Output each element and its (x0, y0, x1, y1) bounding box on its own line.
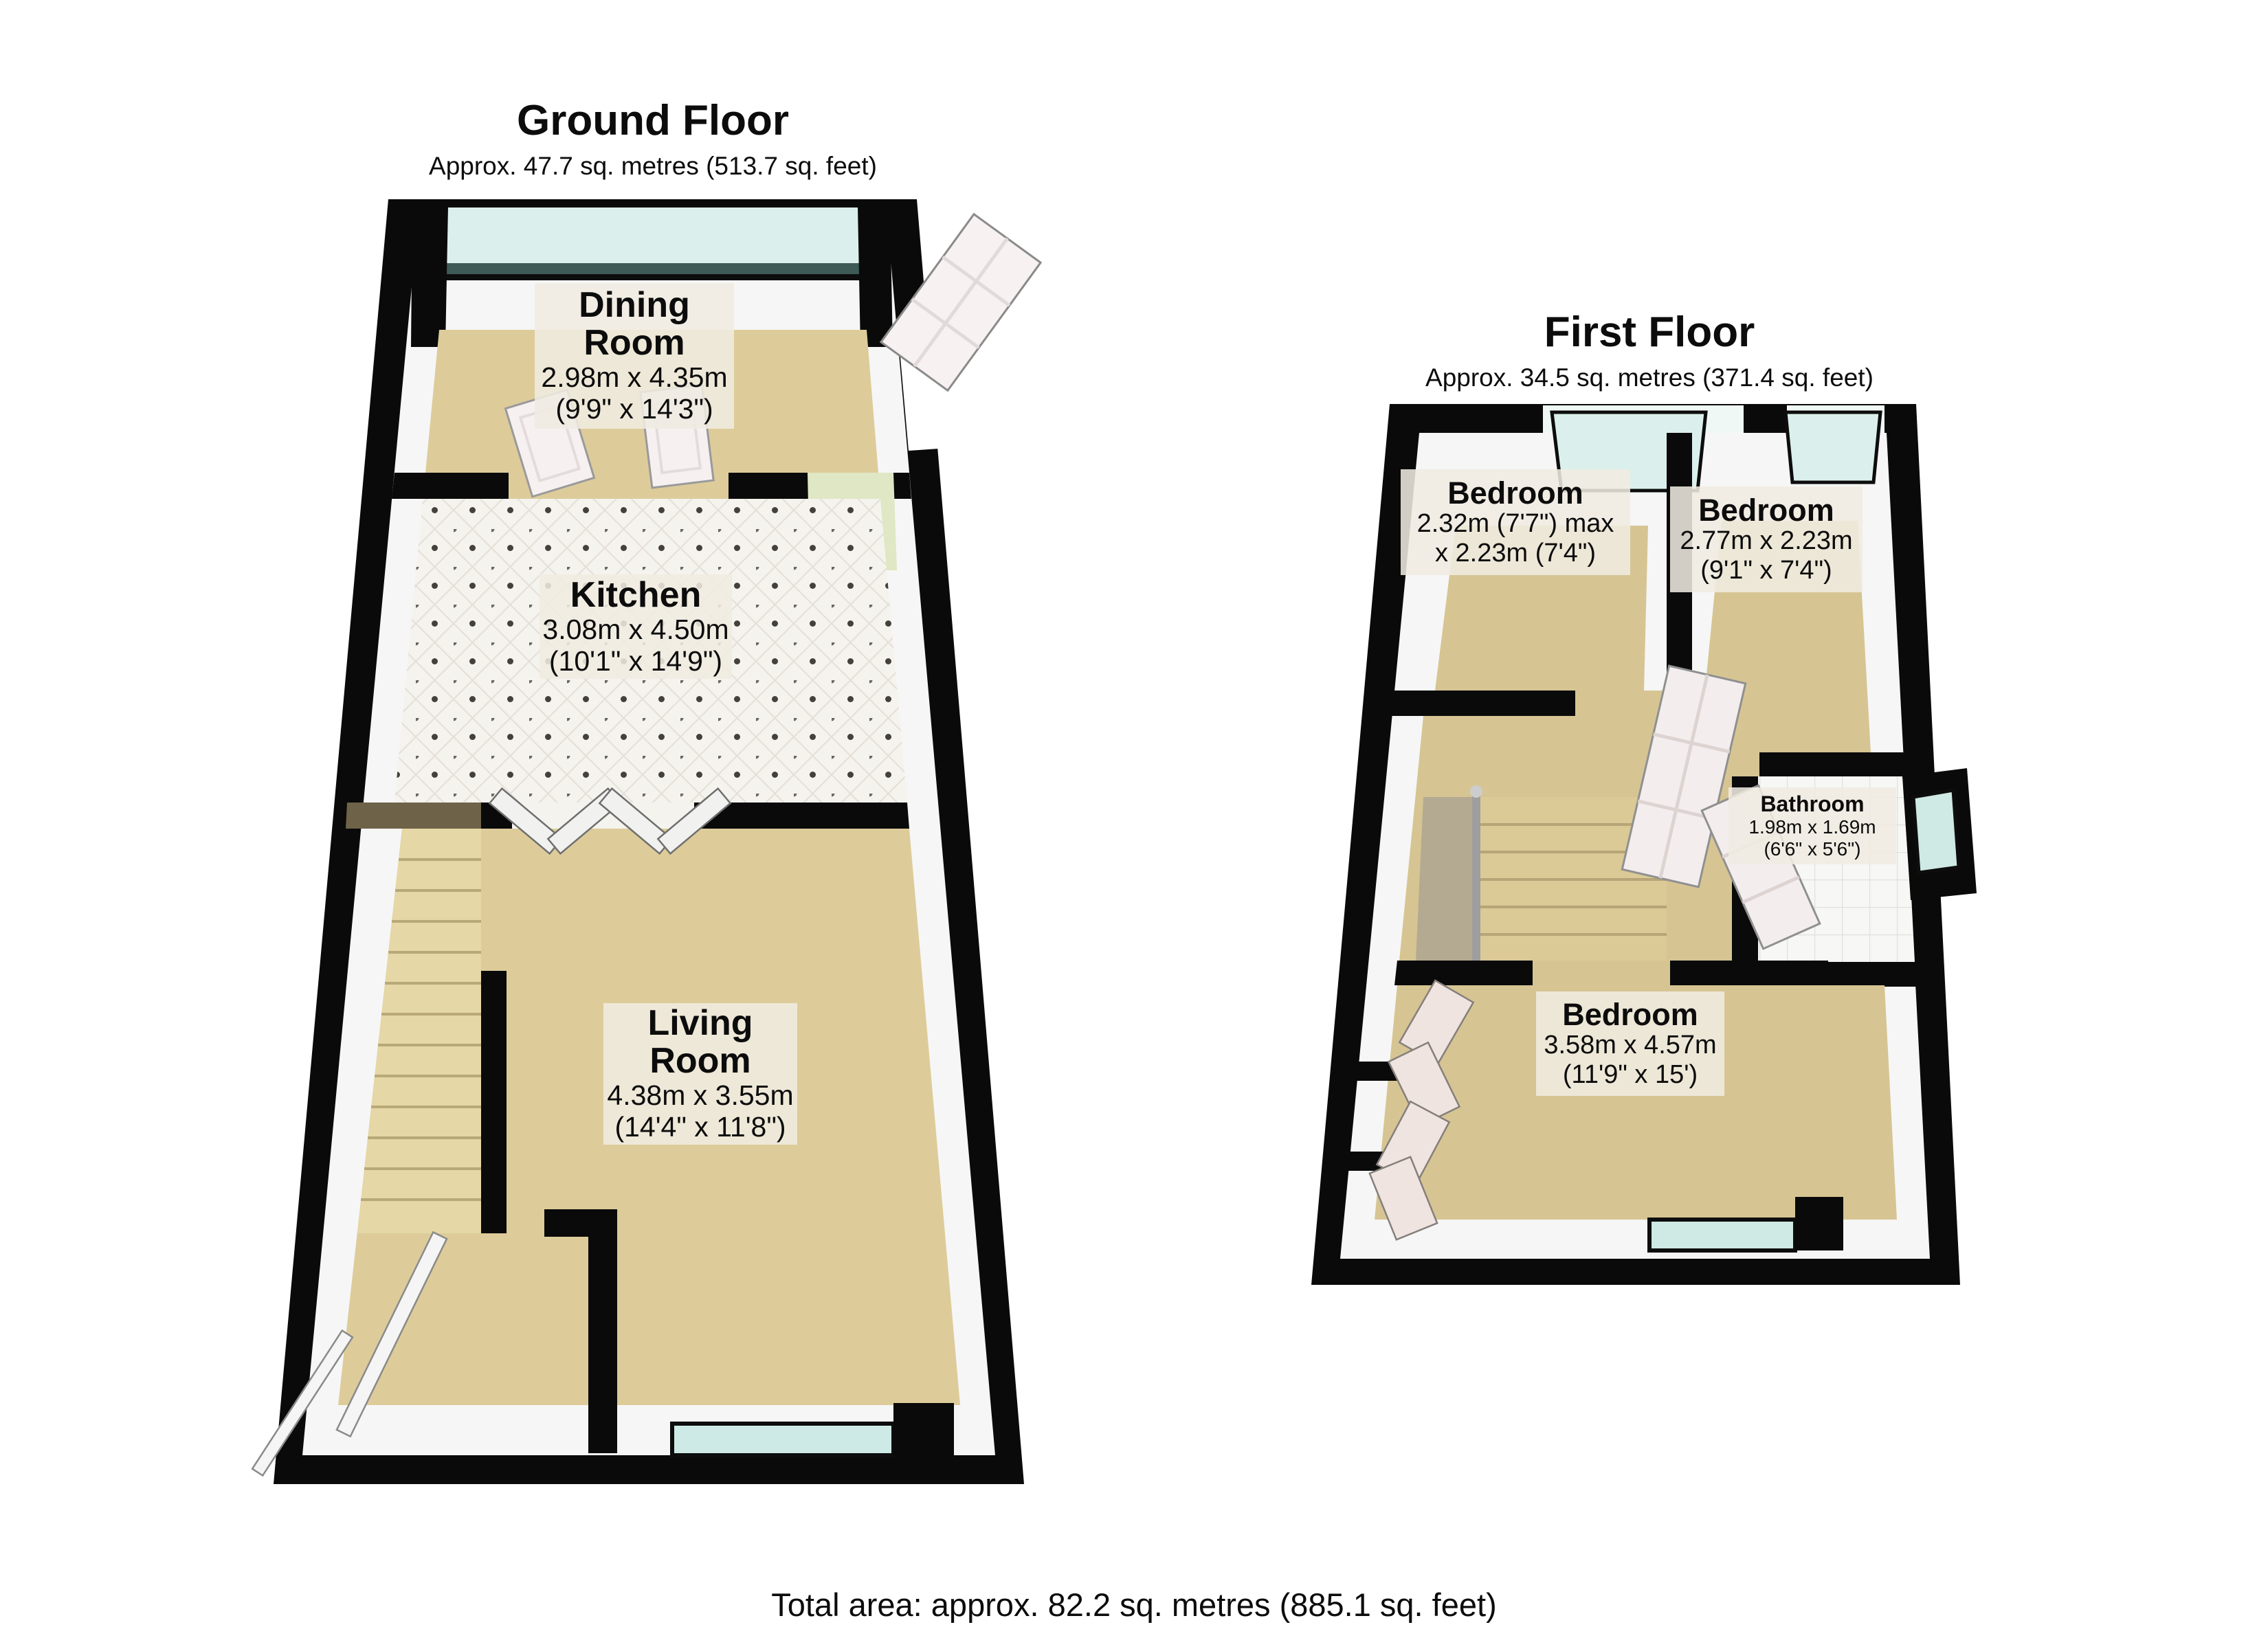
room-label-kitchen: Kitchen 3.08m x 4.50m (10'1" x 14'9") (540, 574, 732, 679)
room-dims-metric: 2.77m x 2.23m (1680, 526, 1852, 556)
dining-window-frame (439, 274, 867, 280)
room-dims-metric: 3.08m x 4.50m (542, 614, 729, 646)
wall-notch (893, 1403, 954, 1455)
room-name: Dining Room (579, 287, 690, 362)
room-name: Living Room (647, 1005, 753, 1080)
room-name: Bedroom (1562, 998, 1698, 1031)
door-opening (1533, 961, 1670, 985)
room-dims-metric: 1.98m x 1.69m (1748, 816, 1876, 838)
room-dims-imperial: (11'9" x 15') (1563, 1060, 1698, 1090)
bedroom-window-glass (1786, 412, 1880, 482)
total-area-caption: Total area: approx. 82.2 sq. metres (885… (0, 1586, 2268, 1624)
room-dims-imperial: (10'1" x 14'9") (549, 646, 722, 677)
room-label-living: Living Room 4.38m x 3.55m (14'4" x 11'8"… (603, 1003, 797, 1145)
room-dims-metric: 4.38m x 3.55m (607, 1080, 793, 1112)
room-name: Bathroom (1760, 792, 1864, 816)
room-label-bedroom-1: Bedroom 2.32m (7'7") max x 2.23m (7'4") (1401, 469, 1630, 575)
ground-floor-title: Ground Floor (309, 96, 997, 145)
wall-notch (1795, 1197, 1843, 1250)
dining-window-glass (443, 207, 863, 263)
hall-wall (588, 1233, 617, 1453)
first-floor-header: First Floor Approx. 34.5 sq. metres (371… (1306, 308, 1993, 392)
room-dims-imperial: x 2.23m (7'4") (1435, 539, 1596, 568)
room-dims-metric: 2.98m x 4.35m (541, 362, 727, 394)
room-dims-metric: 3.58m x 4.57m (1544, 1031, 1716, 1060)
floorplan-drawing (0, 0, 2268, 1649)
room-dims-imperial: (9'1" x 7'4") (1700, 556, 1832, 585)
room-dims-imperial: (14'4" x 11'8") (614, 1112, 786, 1143)
ground-floor-header: Ground Floor Approx. 47.7 sq. metres (51… (309, 96, 997, 181)
hall-wall-stub (544, 1209, 617, 1237)
bedroom3-window-glass (1649, 1220, 1795, 1250)
room-label-dining: Dining Room 2.98m x 4.35m (9'9" x 14'3") (535, 283, 734, 429)
room-dims-imperial: (9'9" x 14'3") (555, 394, 713, 425)
stair-side-wall (481, 971, 507, 1233)
living-window-glass (672, 1424, 893, 1455)
wall-post-right (858, 206, 893, 347)
room-name: Kitchen (570, 576, 702, 614)
ground-floor-subtitle: Approx. 47.7 sq. metres (513.7 sq. feet) (309, 152, 997, 181)
room-label-bedroom-3: Bedroom 3.58m x 4.57m (11'9" x 15') (1536, 991, 1724, 1096)
dining-window-sill (440, 263, 866, 274)
wall-post-left (411, 206, 448, 347)
room-name: Bedroom (1447, 477, 1583, 510)
door-opening (1575, 691, 1665, 716)
first-floor-subtitle: Approx. 34.5 sq. metres (371.4 sq. feet) (1306, 363, 1993, 392)
room-dims-imperial: (6'6" x 5'6") (1764, 838, 1860, 860)
room-label-bedroom-2: Bedroom 2.77m x 2.23m (9'1" x 7'4") (1670, 486, 1863, 592)
bathroom-window-glass (1913, 790, 1959, 873)
stair-top-edge (346, 803, 481, 829)
stairwell-shadow (1416, 797, 1478, 961)
room-name: Bedroom (1698, 494, 1834, 527)
first-floor-title: First Floor (1306, 308, 1993, 357)
floorplan-page: Ground Floor Approx. 47.7 sq. metres (51… (0, 0, 2268, 1649)
room-dims-metric: 2.32m (7'7") max (1417, 509, 1614, 539)
room-label-bathroom: Bathroom 1.98m x 1.69m (6'6" x 5'6") (1728, 787, 1896, 864)
